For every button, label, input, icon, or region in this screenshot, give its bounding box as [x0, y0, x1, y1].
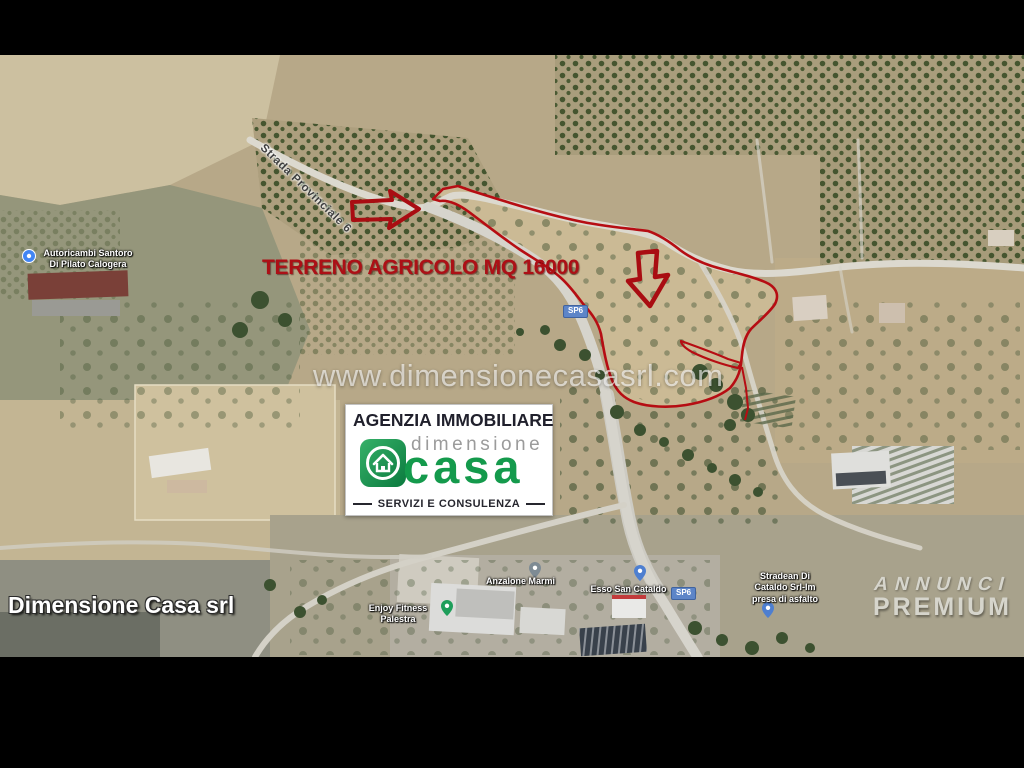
annunci-premium-watermark: ANNUNCI PREMIUM: [873, 574, 1012, 622]
satellite-terrain: [0, 55, 1024, 657]
agency-header: AGENZIA IMMOBILIARE: [353, 410, 545, 431]
letterbox-bottom: [0, 657, 1024, 768]
letterbox-top: [0, 0, 1024, 55]
website-watermark: www.dimensionecasasrl.com: [313, 358, 723, 394]
agency-logo-card: AGENZIA IMMOBILIARE dimensione casa SERV…: [345, 404, 553, 516]
brand-row: dimensione casa: [353, 433, 545, 495]
house-logo-icon: [359, 436, 407, 490]
listing-image: Strada Provinciale 6 SP6 SP6 Autoricambi…: [0, 0, 1024, 768]
agency-credit: Dimensione Casa srl: [8, 592, 234, 619]
blue-pin-icon: [634, 565, 646, 581]
brand-casa: casa: [403, 443, 524, 490]
poi-label-autoricambi: Autoricambi Santoro Di Pilato Calogera: [33, 248, 143, 271]
parcel-size-label: TERRENO AGRICOLO MQ 16000: [262, 256, 579, 280]
tagline-dash-right: [526, 503, 545, 505]
poi-label-anzalone: Anzalone Marmi: [473, 576, 568, 587]
tagline-dash-left: [353, 503, 372, 505]
satellite-map: [0, 55, 1024, 657]
route-badge-sp6: SP6: [563, 305, 588, 318]
poi-label-fitness: Enjoy Fitness Palestra: [350, 603, 446, 626]
agency-tagline: SERVIZI E CONSULENZA: [353, 498, 545, 510]
poi-label-esso: Esso San Cataldo: [581, 584, 676, 595]
poi-label-strade: Stradean Di Cataldo Srl-Im presa di asfa…: [742, 571, 828, 605]
